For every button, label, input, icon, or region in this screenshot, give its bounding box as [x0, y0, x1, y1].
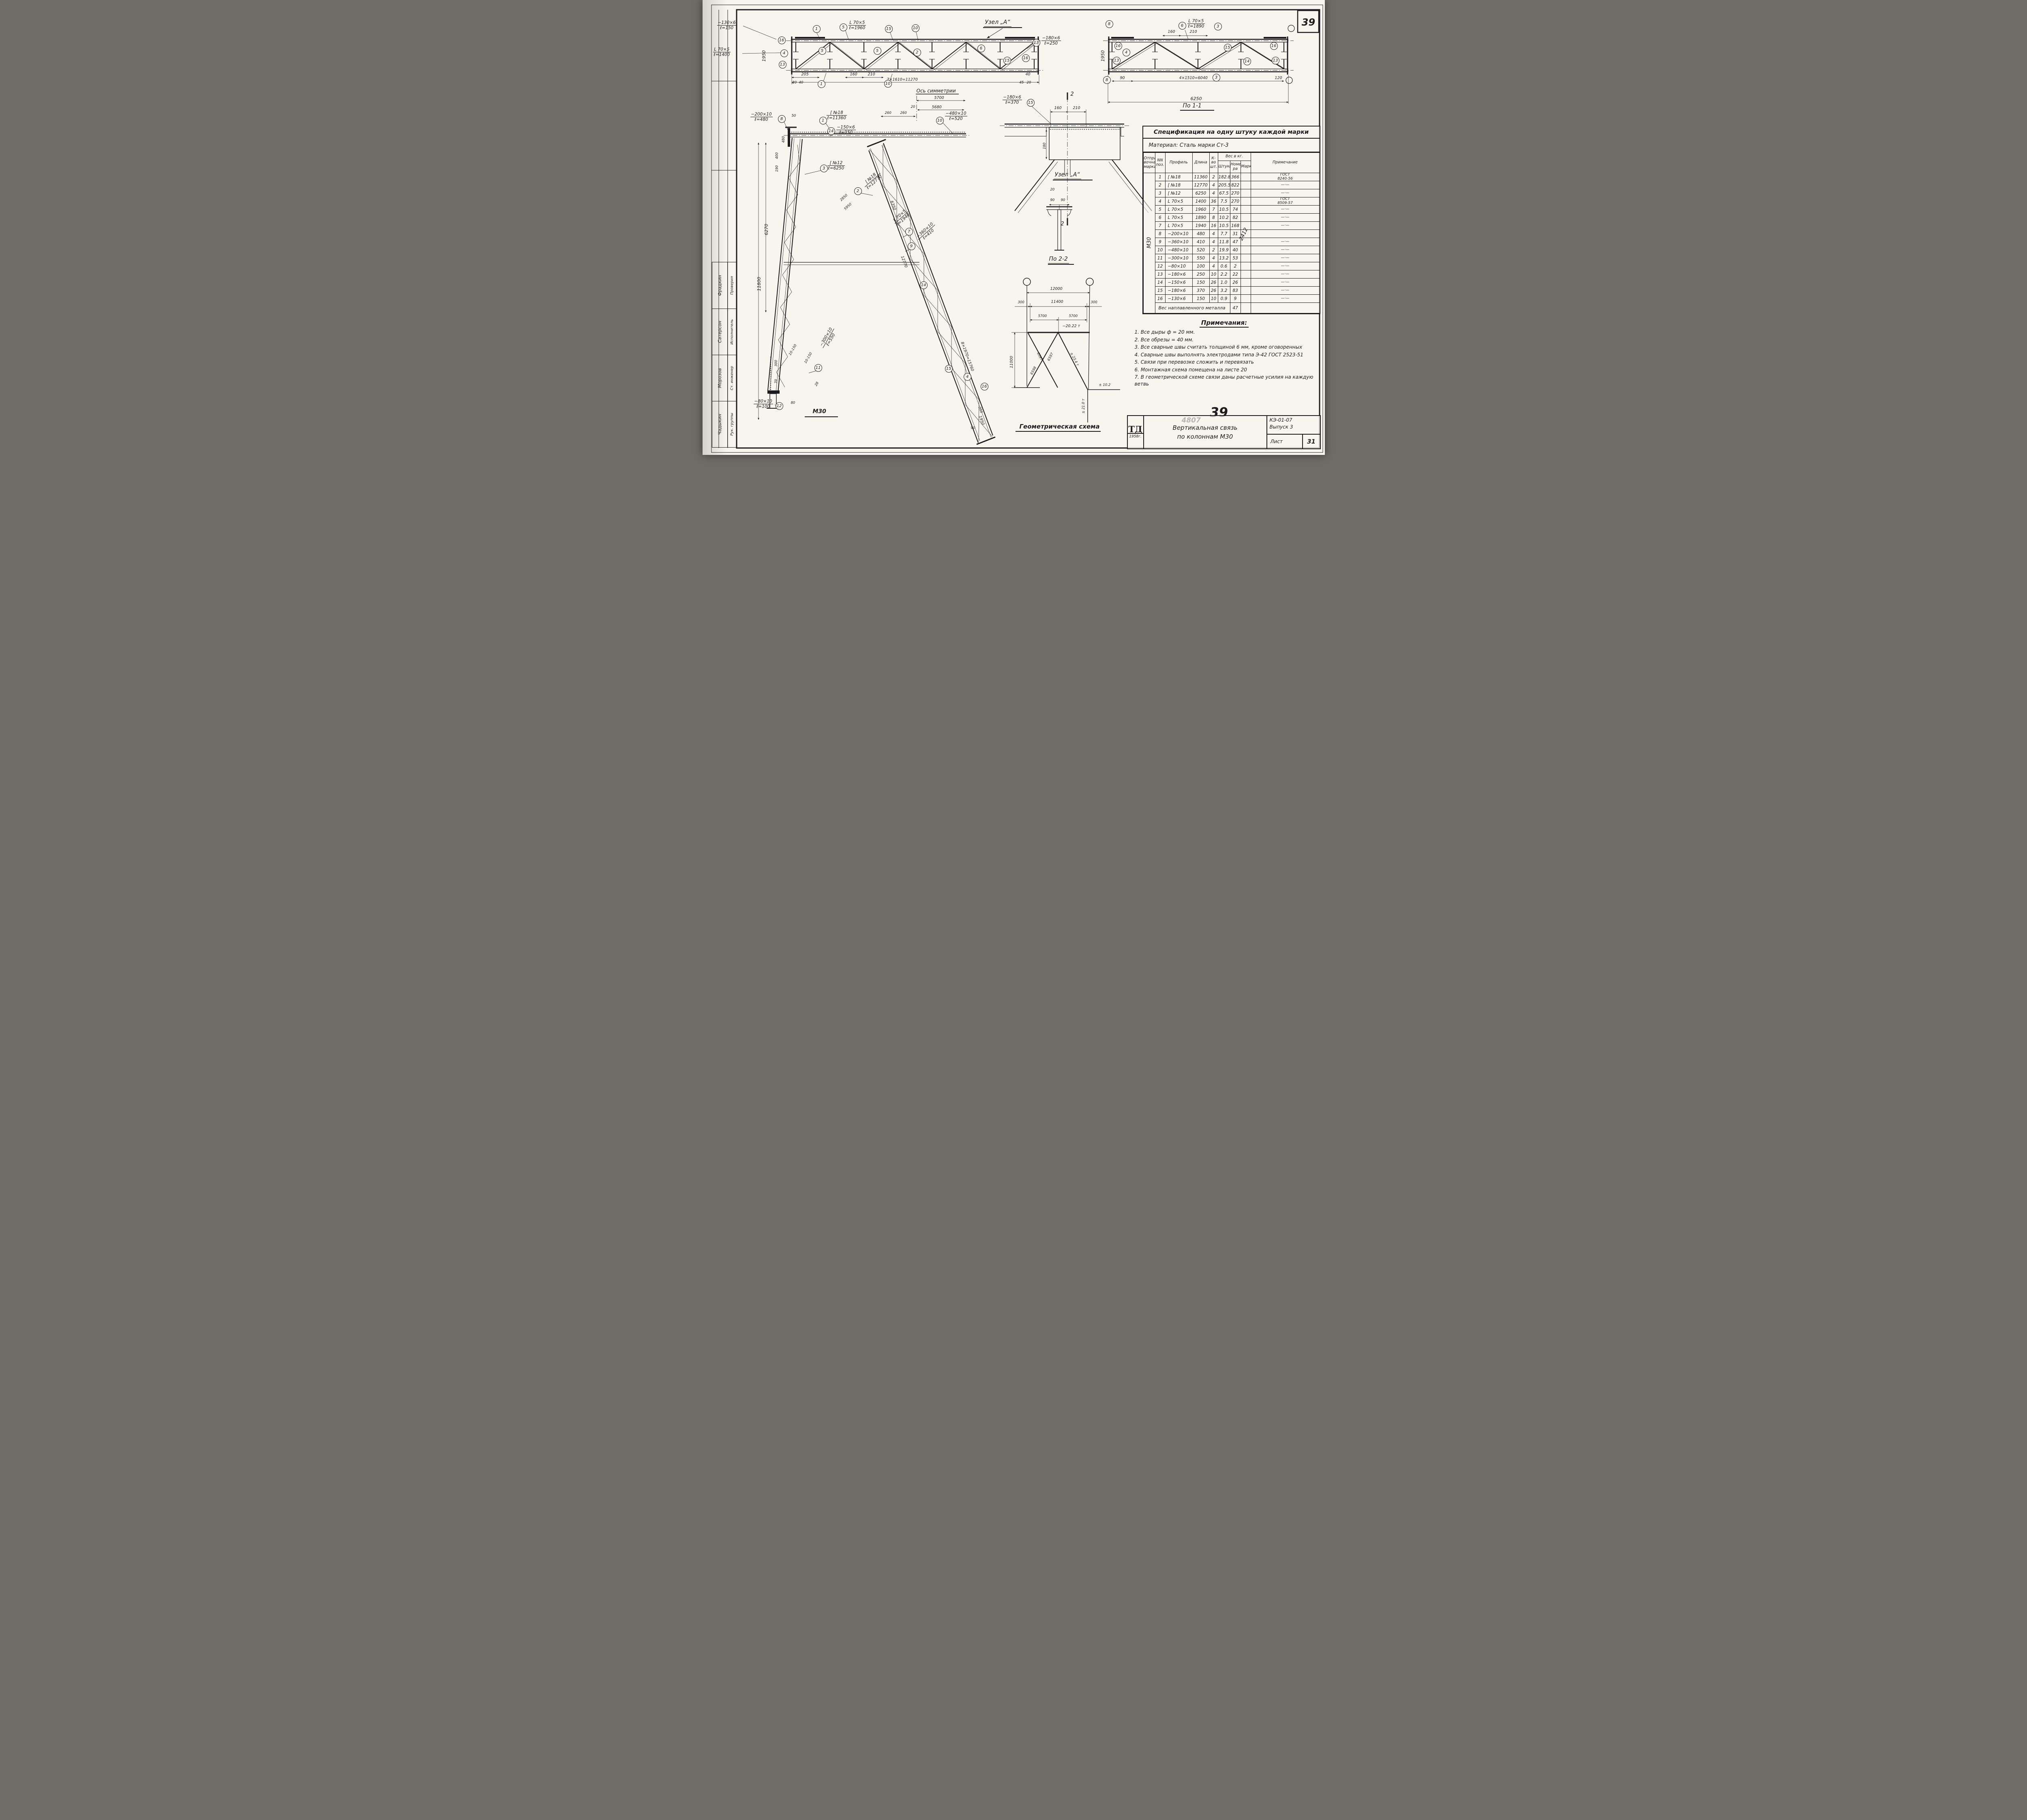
callout-15: 15: [1003, 57, 1011, 64]
dim-20: 20: [1027, 81, 1031, 85]
col-header-weight-piece: Штуки: [1218, 161, 1230, 173]
callout-5: 5: [874, 47, 881, 55]
spec-cell-profile: −180×6: [1165, 270, 1192, 279]
callout-1: 1: [819, 117, 827, 124]
dim-210: 210: [1073, 106, 1080, 111]
spec-cell-wm: [1241, 246, 1251, 254]
spec-row: 4L 70×51400367.5270ГОСТ 8509-57: [1143, 197, 1320, 206]
spec-cell-len: 480: [1192, 230, 1209, 238]
spec-cell-wp: 13.2: [1218, 254, 1230, 262]
callout-12: 12: [776, 402, 783, 410]
dim-5680: 5680: [932, 105, 942, 110]
spec-cell-pos: 1: [1155, 173, 1165, 181]
dim-160: 160: [850, 73, 857, 77]
spec-cell-wp: 0.9: [1218, 295, 1230, 303]
dim-panel: 7×1610=11270: [887, 78, 918, 82]
spec-cell-pos: 4: [1155, 197, 1165, 206]
corner-sheet-number: 39: [1298, 12, 1319, 32]
dim-40: 40: [799, 81, 804, 85]
spec-cell-profile: L 70×5: [1165, 206, 1192, 214]
spec-cell-wn: 22: [1230, 270, 1241, 279]
col-header-pos: NN поз.: [1155, 153, 1165, 173]
spec-cell-qty: 26: [1209, 287, 1218, 295]
col-header-mark: Отпра- вочная марка: [1143, 153, 1155, 173]
callout-13: 13: [1272, 57, 1279, 64]
profile-label: L 70×5ℓ=1400: [713, 47, 731, 57]
node-a-detail: [1000, 92, 1152, 225]
spec-cell-note: [1251, 230, 1320, 238]
spec-row: 13−180×6250102.222—·—: [1143, 270, 1320, 279]
spec-cell-len: 1400: [1192, 197, 1209, 206]
dim-210: 210: [1190, 30, 1197, 34]
spec-cell-note: —·—: [1251, 287, 1320, 295]
dim-80: 80: [791, 401, 795, 405]
callout-2: 2: [854, 187, 862, 195]
spec-cell-wn: 82: [1230, 214, 1241, 222]
callout-6: 6: [977, 45, 985, 52]
spec-row: 16−130×6150100.99—·—: [1143, 295, 1320, 303]
callout-2: 2: [913, 49, 921, 56]
spec-cell-wm: [1241, 173, 1251, 181]
spec-row: 7L 70×519401610.5168—·—: [1143, 222, 1320, 230]
spec-cell-profile: L 70×5: [1165, 197, 1192, 206]
dim-205: 205: [801, 73, 809, 77]
spec-cell-qty: 10: [1209, 295, 1218, 303]
spec-cell-wm: [1241, 214, 1251, 222]
spec-cell-note: —·—: [1251, 262, 1320, 270]
spec-cell-pos: 13: [1155, 270, 1165, 279]
spec-cell-wn: 168: [1230, 222, 1241, 230]
signature-entry: Сатерсон Исполнитель: [712, 309, 737, 355]
profile-label: −150×6ℓ=150: [836, 125, 856, 135]
truss-elevation-1-1: [1103, 25, 1294, 104]
blueprint-sheet: 39 4807 39 −130×6ℓ=150 16 1 5 L 70×5ℓ=19…: [703, 0, 1325, 455]
title-block: ТД 1958г. Вертикальная связь по колоннам…: [1127, 415, 1321, 449]
callout-15: 15: [1027, 99, 1035, 107]
spec-cell-wp: 19.9: [1218, 246, 1230, 254]
dim-260: 260: [900, 111, 907, 116]
callout-14: 14: [827, 127, 835, 135]
spec-row: 11−300×10550413.253—·—: [1143, 254, 1320, 262]
spec-row: 9−360×10410411.847—·—: [1143, 238, 1320, 246]
spec-cell-note: —·—: [1251, 181, 1320, 189]
callout-4: 4: [780, 49, 788, 57]
spec-cell-profile: −150×6: [1165, 279, 1192, 287]
shipping-mark: М30: [1146, 238, 1152, 249]
spec-cell-pos: 12: [1155, 262, 1165, 270]
spec-cell-qty: 36: [1209, 197, 1218, 206]
spec-cell-wp: 10.5: [1218, 222, 1230, 230]
callout-8: 8: [1103, 76, 1111, 84]
dim-300: 300: [775, 360, 779, 367]
profile-label: [ №18ℓ=11360: [827, 110, 847, 120]
document-issue: Выпуск 3: [1270, 424, 1318, 431]
profile-label: −180×6ℓ=370: [1003, 95, 1022, 105]
dim-20: 20: [1050, 188, 1055, 192]
section-mark-2: 2: [1071, 92, 1074, 98]
spec-cell-pos: 9: [1155, 238, 1165, 246]
spec-cell-pos: 15: [1155, 287, 1165, 295]
spec-cell-len: 11360: [1192, 173, 1209, 181]
spec-cell-profile: −80×10: [1165, 262, 1192, 270]
org-logo-year: 1958г.: [1129, 435, 1142, 439]
dim-120: 120: [1275, 76, 1282, 81]
spec-cell-wn: 40: [1230, 246, 1241, 254]
weld-metal-value: 47: [1230, 303, 1241, 313]
spec-cell-qty: 2: [1209, 246, 1218, 254]
callout-13: 13: [779, 61, 786, 69]
signature-entry: Фрадкин Проверил: [712, 262, 737, 309]
dim-6270: 6270: [764, 224, 769, 235]
signature-stamp: Чадыкин Рук. группы Морозов Ст. инженер …: [712, 263, 736, 448]
spec-cell-qty: 4: [1209, 189, 1218, 197]
dim-20: 20: [911, 105, 915, 109]
spec-cell-profile: −480×10: [1165, 246, 1192, 254]
dim-1950: 1950: [1101, 50, 1106, 62]
note-item: 1. Все дыры ф = 20 мм.: [1133, 329, 1316, 336]
force-top-chord: −20.22 т: [1063, 324, 1080, 329]
spec-cell-len: 370: [1192, 287, 1209, 295]
spec-cell-wp: 0.6: [1218, 262, 1230, 270]
note-item: 2. Все обрезы = 40 мм.: [1133, 337, 1316, 343]
spec-cell-pos: 6: [1155, 214, 1165, 222]
spec-cell-note: —·—: [1251, 246, 1320, 254]
spec-cell-len: 6250: [1192, 189, 1209, 197]
spec-cell-wm: [1241, 254, 1251, 262]
spec-cell-len: 250: [1192, 270, 1209, 279]
profile-label: [ №12ℓ=6250: [827, 161, 845, 171]
spec-cell-wm: [1241, 287, 1251, 295]
callout-10: 10: [884, 80, 892, 88]
profile-label: −200×10ℓ=480: [750, 112, 773, 122]
profile-label: −130×6ℓ=150: [717, 20, 737, 30]
spec-cell-wp: 2.2: [1218, 270, 1230, 279]
spec-cell-qty: 4: [1209, 238, 1218, 246]
callout-10: 10: [936, 117, 944, 124]
callout-13: 13: [1033, 39, 1040, 47]
spec-cell-note: —·—: [1251, 214, 1320, 222]
spec-cell-profile: −130×6: [1165, 295, 1192, 303]
callout-16: 16: [1114, 42, 1122, 50]
spec-cell-wm: [1241, 270, 1251, 279]
spec-cell-profile: L 70×5: [1165, 222, 1192, 230]
spec-cell-profile: [ №18: [1165, 181, 1192, 189]
spec-cell-empty: [1241, 303, 1251, 313]
spec-cell-qty: 26: [1209, 279, 1218, 287]
spec-cell-pos: 3: [1155, 189, 1165, 197]
spec-cell-wm: [1241, 262, 1251, 270]
dim-40: 40: [1026, 73, 1031, 77]
callout-8: 8: [1106, 20, 1113, 28]
drawing-title-line1: Вертикальная связь: [1173, 423, 1238, 433]
spec-cell-qty: 4: [1209, 230, 1218, 238]
signature-role: Рук. группы: [728, 401, 737, 447]
shipping-mark-cell: М30: [1143, 173, 1155, 313]
spec-row: 6L 70×51890810.282—·—: [1143, 214, 1320, 222]
dim-90: 90: [1050, 199, 1055, 203]
spec-cell-pos: 5: [1155, 206, 1165, 214]
signature-name: Чадыкин: [712, 401, 728, 447]
drawing-title: Вертикальная связь по колоннам М30: [1144, 416, 1266, 448]
callout-14: 14: [1243, 58, 1251, 65]
sheet-word: Лист: [1267, 435, 1302, 448]
signature-name: Морозов: [712, 355, 728, 401]
drawing-title-line2: по колоннам М30: [1177, 432, 1233, 442]
note-item: 6. Монтажная схема помещена на листе 20: [1133, 367, 1316, 373]
dim-160: 160: [1168, 30, 1175, 34]
spec-cell-len: 100: [1192, 262, 1209, 270]
callout-7: 7: [905, 228, 913, 236]
spec-row: 14−150×6150261.026—·—: [1143, 279, 1320, 287]
weld-metal-label: Вес наплавленного металла: [1155, 303, 1230, 313]
callout-15: 15: [945, 365, 953, 373]
profile-label: −80×10ℓ=100: [754, 399, 773, 409]
spec-cell-note: —·—: [1251, 270, 1320, 279]
spec-cell-qty: 10: [1209, 270, 1218, 279]
note-item: 4. Сварные швы выполнять электродами тип…: [1133, 352, 1316, 358]
callout-11: 11: [814, 364, 822, 372]
spec-cell-len: 12770: [1192, 181, 1209, 189]
col-header-weight-number: Номе- ра: [1230, 161, 1241, 173]
spec-cell-note: ГОСТ 8509-57: [1251, 197, 1320, 206]
callout-8: 8: [778, 115, 786, 123]
callout-4: 4: [1123, 49, 1130, 56]
spec-cell-profile: −180×6: [1165, 287, 1192, 295]
callout-6: 6: [1178, 22, 1186, 30]
spec-cell-wp: 1.0: [1218, 279, 1230, 287]
spec-cell-pos: 2: [1155, 181, 1165, 189]
col-header-weight: Вес в кг.: [1218, 153, 1251, 161]
dim-90: 90: [1061, 199, 1065, 203]
section-2-2: [1046, 205, 1072, 250]
geometric-scheme-title: Геометрическая схема: [1020, 423, 1100, 430]
spec-cell-wm: [1241, 197, 1251, 206]
dim-190: 190: [776, 165, 780, 172]
spec-cell-qty: 4: [1209, 254, 1218, 262]
spec-weld-row: Вес наплавленного металла47: [1143, 303, 1320, 313]
mark-m30-label: М30: [813, 409, 826, 415]
dim-6250: 6250: [1191, 96, 1202, 101]
col-header-weight-mark: Марки: [1241, 161, 1251, 173]
dim-12000: 12000: [1050, 287, 1063, 292]
dim-400: 400: [776, 152, 780, 159]
spec-cell-wn: 270: [1230, 189, 1241, 197]
dim-300: 300: [1091, 301, 1097, 305]
callout-5: 5: [819, 47, 826, 55]
callout-3: 3: [1213, 74, 1220, 81]
dim-5700: 5700: [1038, 315, 1047, 319]
spec-cell-wm: [1241, 189, 1251, 197]
spec-cell-note: —·—: [1251, 254, 1320, 262]
spec-cell-profile: [ №18: [1165, 173, 1192, 181]
spec-cell-len: 150: [1192, 279, 1209, 287]
spec-cell-qty: 16: [1209, 222, 1218, 230]
spec-cell-wm: [1241, 295, 1251, 303]
dim-180: 180: [1043, 143, 1047, 149]
spec-cell-profile: L 70×5: [1165, 214, 1192, 222]
profile-label: −180×6ℓ=250: [1041, 36, 1061, 46]
notes-block: Примечания: 1. Все дыры ф = 20 мм. 2. Вс…: [1133, 319, 1316, 388]
spec-row: 8−200×1048047.731: [1143, 230, 1320, 238]
spec-cell-len: 1940: [1192, 222, 1209, 230]
spec-cell-qty: 8: [1209, 214, 1218, 222]
callout-10: 10: [912, 24, 919, 32]
spec-cell-wp: 11.8: [1218, 238, 1230, 246]
col-header-length: Длина: [1192, 153, 1209, 173]
spec-cell-len: 410: [1192, 238, 1209, 246]
signature-role: Ст. инженер: [728, 355, 737, 401]
spec-cell-wm: [1241, 181, 1251, 189]
callout-16: 16: [981, 383, 988, 390]
force-bottom-v: ± 21.0 т: [1082, 399, 1086, 414]
dim-90: 90: [971, 427, 975, 431]
spec-cell-pos: 16: [1155, 295, 1165, 303]
spec-cell-len: 1890: [1192, 214, 1209, 222]
spec-cell-len: 1960: [1192, 206, 1209, 214]
spec-material: Материал: Сталь марки Ст-3: [1143, 139, 1320, 152]
spec-cell-len: 150: [1192, 295, 1209, 303]
callout-4: 4: [964, 373, 971, 381]
dim-11400: 11400: [1051, 300, 1063, 304]
spec-cell-profile: −360×10: [1165, 238, 1192, 246]
signature-role: Исполнитель: [728, 309, 737, 355]
spec-cell-note: —·—: [1251, 279, 1320, 287]
callout-16: 16: [778, 36, 786, 44]
spec-cell-wm: [1241, 279, 1251, 287]
spec-cell-wn: 9: [1230, 295, 1241, 303]
spec-cell-wp: 10.2: [1218, 214, 1230, 222]
callout-16: 16: [1270, 42, 1278, 50]
spec-cell-qty: 2: [1209, 173, 1218, 181]
section-2-2-title: По 2-2: [1048, 256, 1069, 264]
spec-cell-pos: 8: [1155, 230, 1165, 238]
signature-entry: Морозов Ст. инженер: [712, 355, 737, 401]
spec-table-body: М301[ №18113602182.8366ГОСТ 8240-562[ №1…: [1143, 173, 1320, 313]
spec-cell-wp: 3.2: [1218, 287, 1230, 295]
signature-entry: Чадыкин Рук. группы: [712, 401, 737, 447]
col-header-profile: Профиль: [1165, 153, 1192, 173]
profile-label: L 70×5ℓ=1960: [849, 20, 866, 30]
dim-70: 70: [775, 379, 779, 384]
section-mark-2: 2: [1061, 221, 1064, 227]
callout-14: 14: [920, 281, 928, 289]
spec-row: 3[ №126250467.5270—·—: [1143, 189, 1320, 197]
spec-row: М301[ №18113602182.8366ГОСТ 8240-56: [1143, 173, 1320, 181]
spec-cell-note: —·—: [1251, 189, 1320, 197]
spec-cell-note: —·—: [1251, 222, 1320, 230]
dim-160: 160: [1054, 106, 1062, 111]
callout-15: 15: [1224, 44, 1232, 51]
node-a-title-ref: Узел „А“: [984, 19, 1011, 27]
spec-cell-wn: 822: [1230, 181, 1241, 189]
signature-role: Проверил: [728, 262, 737, 309]
section-1-1-title: По 1-1: [1182, 103, 1203, 110]
spec-cell-pos: 7: [1155, 222, 1165, 230]
spec-cell-wn: 53: [1230, 254, 1241, 262]
spec-cell-wn: 270: [1230, 197, 1241, 206]
spec-cell-wn: 74: [1230, 206, 1241, 214]
notes-title: Примечания:: [1200, 319, 1249, 328]
dim-480: 480: [782, 136, 786, 143]
callout-3: 3: [1214, 23, 1222, 30]
profile-label: −480×10ℓ=520: [945, 111, 967, 121]
dim-1950: 1950: [762, 50, 767, 62]
dim-50: 50: [792, 114, 796, 118]
geometric-scheme: [1011, 278, 1120, 431]
profile-label: L 70×5ℓ=1890: [1187, 19, 1205, 29]
spec-cell-wn: 26: [1230, 279, 1241, 287]
spec-row: 15−180×6370263.283—·—: [1143, 287, 1320, 295]
spec-cell-note: —·—: [1251, 238, 1320, 246]
spec-cell-note: ГОСТ 8240-56: [1251, 173, 1320, 181]
dim-260: 260: [885, 111, 891, 116]
spec-row: 10−480×10520219.940—·—: [1143, 246, 1320, 254]
specification-table: Спецификация на одну штуку каждой марки …: [1142, 126, 1320, 314]
dim-11800: 11800: [757, 277, 762, 291]
signature-name: Сатерсон: [712, 309, 728, 355]
spec-cell-wp: 7.7: [1218, 230, 1230, 238]
node-a-title: Узел „А“: [1054, 172, 1081, 179]
dim-45: 45: [1020, 81, 1024, 85]
spec-row: 2[ №18127704205.5822—·—: [1143, 181, 1320, 189]
spec-cell-wp: 182.8: [1218, 173, 1230, 181]
note-item: 3. Все сварные швы считать толщиной 6 мм…: [1133, 344, 1316, 351]
sheet-number: 31: [1302, 435, 1320, 448]
dim-90: 90: [1120, 76, 1125, 81]
dim-panel: 4×1510=6040: [1179, 76, 1208, 81]
callout-9: 9: [908, 242, 915, 250]
org-logo: ТД 1958г.: [1128, 416, 1144, 448]
spec-cell-pos: 14: [1155, 279, 1165, 287]
spec-cell-profile: [ №12: [1165, 189, 1192, 197]
spec-cell-wn: 83: [1230, 287, 1241, 295]
spec-cell-wn: 2: [1230, 262, 1241, 270]
spec-cell-profile: −300×10: [1165, 254, 1192, 262]
spec-row: 5L 70×51960710.574—·—: [1143, 206, 1320, 214]
dim-5700: 5700: [934, 96, 944, 101]
dim-5700: 5700: [1069, 315, 1078, 319]
note-item: 5. Связи при перевозке сложить и перевяз…: [1133, 359, 1316, 366]
dim-210: 210: [868, 73, 875, 77]
spec-cell-qty: 4: [1209, 262, 1218, 270]
spec-row: 12−80×1010040.62—·—: [1143, 262, 1320, 270]
spec-cell-pos: 11: [1155, 254, 1165, 262]
col-header-note: Примечание: [1251, 153, 1320, 173]
dim-11000: 11000: [1010, 356, 1014, 368]
spec-cell-empty: [1251, 303, 1320, 313]
symmetry-axis-label: Ось симметрии: [917, 88, 956, 94]
spec-title: Спецификация на одну штуку каждой марки: [1143, 126, 1320, 139]
spec-cell-pos: 10: [1155, 246, 1165, 254]
spec-cell-qty: 7: [1209, 206, 1218, 214]
spec-cell-wp: 67.5: [1218, 189, 1230, 197]
spec-cell-profile: −200×10: [1165, 230, 1192, 238]
col-header-qty: К-во шт.: [1209, 153, 1218, 173]
callout-1: 1: [813, 25, 821, 33]
callout-16: 16: [1022, 54, 1030, 62]
org-logo-text: ТД: [1127, 426, 1143, 434]
spec-cell-wp: 205.5: [1218, 181, 1230, 189]
spec-cell-wm: [1241, 206, 1251, 214]
signature-name: Фрадкин: [712, 262, 728, 309]
dim-300: 300: [1018, 301, 1024, 305]
callout-1: 1: [818, 80, 825, 88]
spec-cell-note: —·—: [1251, 206, 1320, 214]
dim-20: 20: [793, 81, 797, 85]
spec-cell-len: 520: [1192, 246, 1209, 254]
callout-3: 3: [820, 165, 828, 172]
spec-cell-wp: 7.5: [1218, 197, 1230, 206]
